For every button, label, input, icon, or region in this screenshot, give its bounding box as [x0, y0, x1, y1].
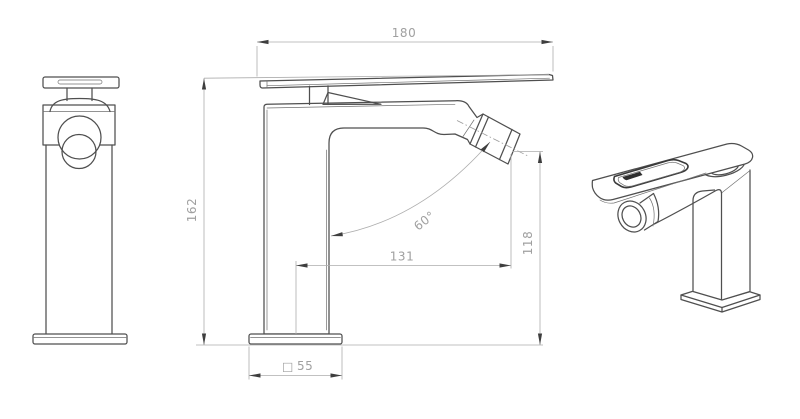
- arrow-arc-start-icon: [331, 232, 343, 236]
- dim-label-60deg: 60°: [411, 208, 438, 233]
- dim-label-131: 131: [390, 250, 414, 264]
- lever-stem: [310, 86, 329, 105]
- dim-spray-angle: 60°: [331, 142, 490, 236]
- arrow-left-icon: [249, 373, 261, 377]
- side-view: [33, 77, 127, 344]
- extension-lines-180: [257, 46, 553, 77]
- dim-label-180: 180: [392, 26, 416, 40]
- arrow-right-icon: [542, 40, 554, 44]
- body-sides: [46, 145, 112, 334]
- perspective-view: [592, 144, 760, 312]
- dim-handle-length: 180: [257, 26, 553, 77]
- base-flange: [33, 334, 127, 344]
- dim-label-55: 55: [297, 359, 313, 373]
- arrow-up-icon: [538, 152, 542, 164]
- dim-label-162: 162: [185, 198, 199, 222]
- dim-base-square: □ 55: [249, 347, 342, 380]
- handle-end-view: [43, 77, 119, 88]
- arrow-up-icon: [202, 78, 206, 89]
- arrow-right-icon: [331, 373, 343, 377]
- dim-label-118: 118: [521, 231, 535, 255]
- arrow-left-icon: [257, 40, 269, 44]
- extension-lines-55: [249, 347, 342, 380]
- dim-outlet-height: 118: [513, 152, 544, 346]
- drawing-canvas: 180 162 118 131: [0, 0, 800, 419]
- technical-drawing: 180 162 118 131: [0, 0, 800, 419]
- square-section-icon: □: [282, 360, 294, 374]
- arrow-down-icon: [202, 334, 206, 346]
- arrow-right-icon: [500, 263, 512, 267]
- front-view: [249, 75, 553, 345]
- front-base-flange: [249, 334, 342, 344]
- arrow-down-icon: [538, 334, 542, 346]
